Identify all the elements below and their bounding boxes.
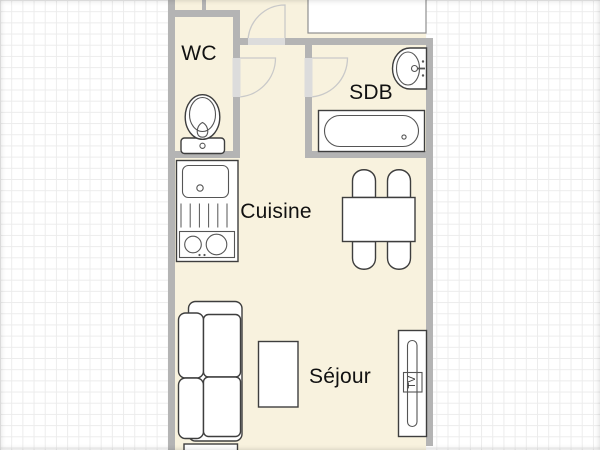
kitchen-sink-unit[interactable]	[177, 161, 239, 262]
sdb-door-threshold	[305, 58, 313, 97]
room-label-wc: WC	[181, 42, 216, 66]
sofa[interactable]	[179, 302, 243, 450]
floor-plan-canvas: TV WC SDB Cuisine Séjour	[0, 0, 600, 450]
wall-left	[168, 0, 175, 450]
dining-table[interactable]	[343, 198, 416, 242]
room-label-sejour: Séjour	[309, 365, 371, 389]
tv-stand[interactable]: TV	[399, 331, 427, 437]
entry-door-threshold	[248, 38, 285, 45]
tv-icon-label: TV	[407, 375, 418, 388]
washbasin[interactable]	[393, 48, 427, 89]
wall-wc-top	[168, 10, 240, 17]
wall-stub-top	[202, 0, 206, 10]
wc-door-threshold	[233, 58, 241, 97]
room-top-cutoff	[308, 0, 426, 33]
floor-plan-drawing: TV	[0, 0, 600, 450]
bathtub[interactable]	[319, 111, 425, 152]
room-label-cuisine: Cuisine	[240, 200, 311, 224]
coffee-table[interactable]	[259, 342, 299, 408]
room-label-sdb: SDB	[349, 81, 393, 105]
